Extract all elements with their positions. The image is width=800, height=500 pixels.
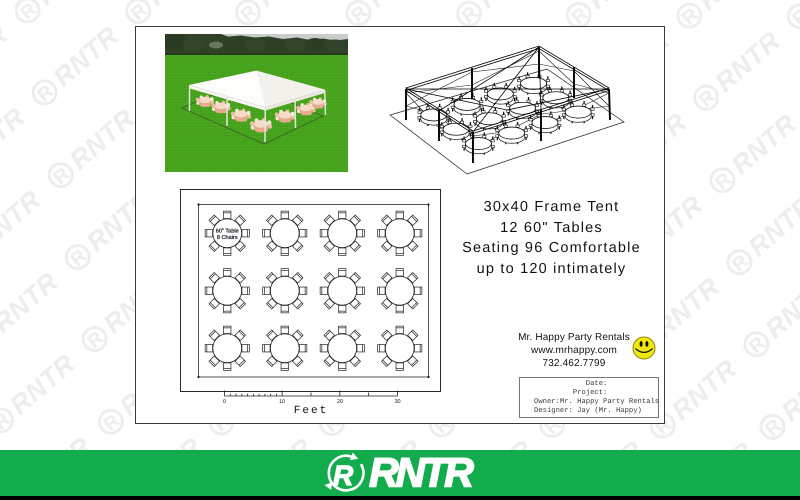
svg-text:60" Table: 60" Table xyxy=(216,227,239,234)
svg-text:R: R xyxy=(333,460,354,491)
svg-text:20: 20 xyxy=(337,399,343,405)
svg-text:0: 0 xyxy=(223,399,226,405)
svg-text:8 Chairs: 8 Chairs xyxy=(217,234,238,241)
svg-text:Feet: Feet xyxy=(294,405,328,417)
svg-text:30: 30 xyxy=(394,399,400,405)
svg-text:RNTR: RNTR xyxy=(369,452,474,496)
svg-text:10: 10 xyxy=(279,399,285,405)
